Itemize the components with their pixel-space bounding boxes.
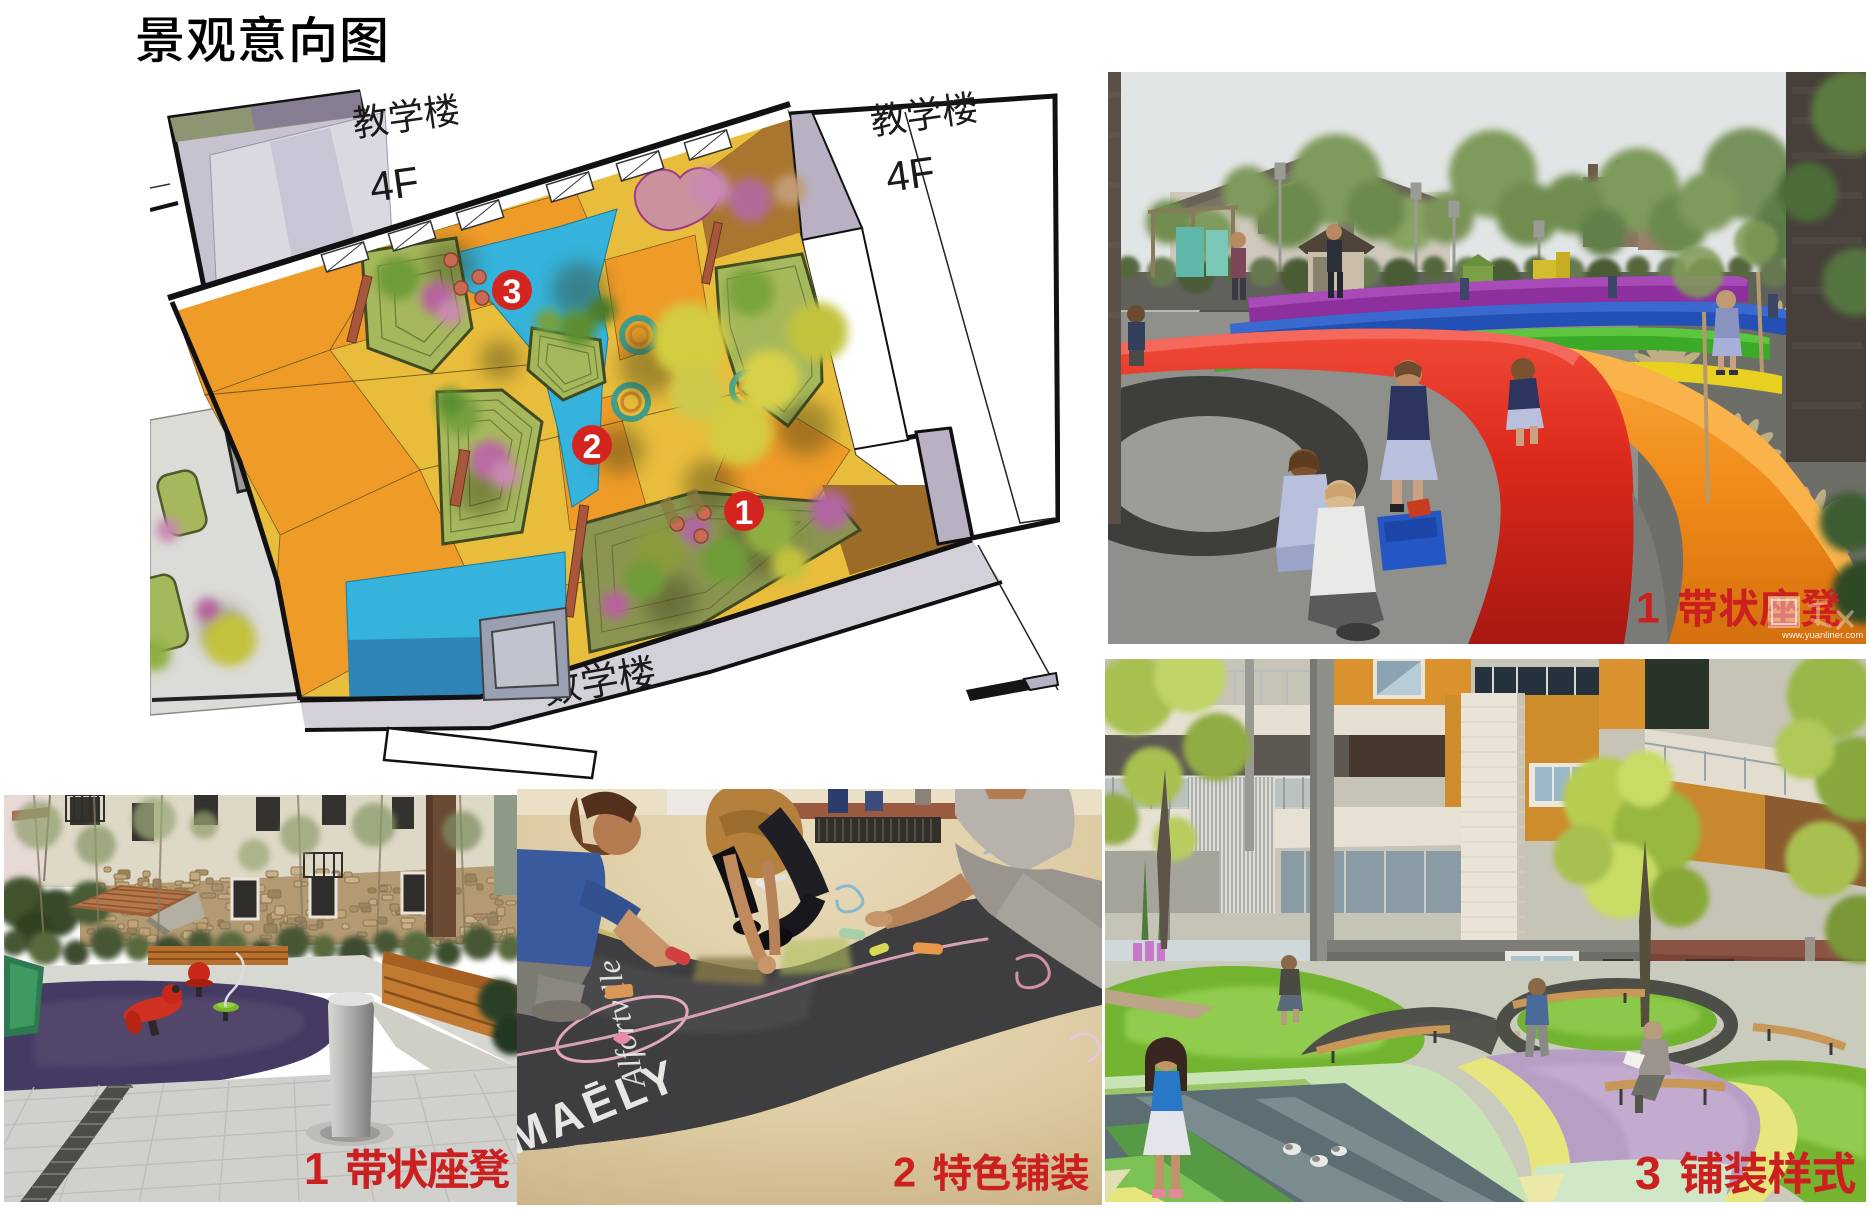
- svg-text:www.yuanliner.com: www.yuanliner.com: [1781, 630, 1863, 641]
- svg-text:4F: 4F: [883, 148, 938, 201]
- svg-text:1: 1: [1636, 584, 1660, 632]
- svg-text:2: 2: [893, 1149, 916, 1196]
- svg-text:1: 1: [304, 1145, 329, 1194]
- svg-text:3: 3: [503, 273, 522, 311]
- svg-text:2: 2: [583, 428, 602, 466]
- svg-text:1: 1: [735, 494, 754, 532]
- svg-text:3: 3: [1635, 1147, 1661, 1199]
- svg-text:4F: 4F: [367, 158, 422, 211]
